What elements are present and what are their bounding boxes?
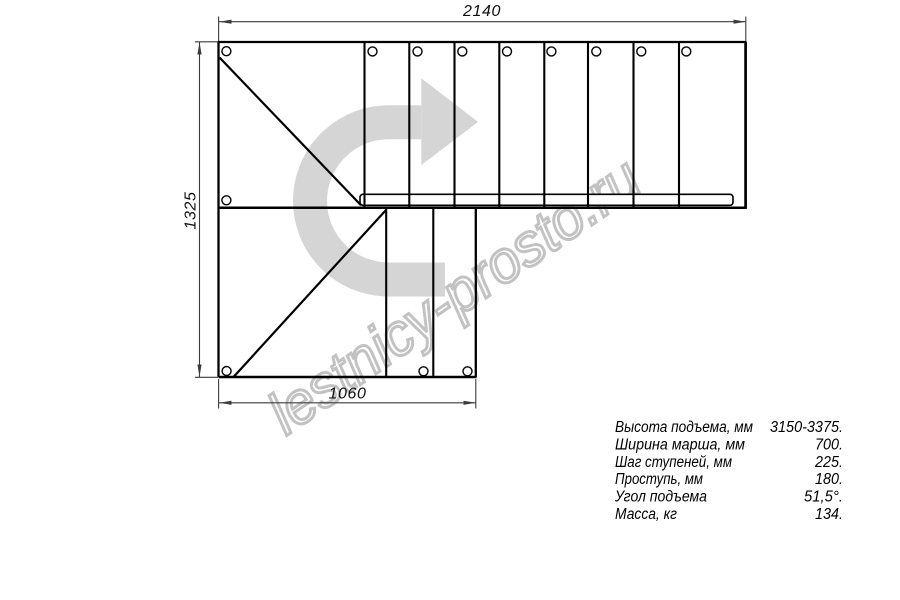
svg-text:180.: 180. [815, 471, 843, 488]
svg-text:700.: 700. [815, 436, 843, 453]
svg-text:Проступь, мм: Проступь, мм [615, 471, 703, 488]
svg-text:Масса, кг: Масса, кг [615, 506, 677, 523]
svg-text:3150-3375.: 3150-3375. [770, 419, 843, 436]
svg-text:2140: 2140 [462, 3, 501, 20]
svg-text:Угол подъема: Угол подъема [614, 489, 707, 506]
svg-text:1325: 1325 [183, 192, 200, 230]
svg-text:1060: 1060 [329, 386, 367, 403]
svg-text:Высота подъема, мм: Высота подъема, мм [615, 419, 753, 436]
svg-text:134.: 134. [815, 506, 843, 523]
svg-text:Ширина марша, мм: Ширина марша, мм [615, 436, 745, 453]
svg-text:Шаг ступеней, мм: Шаг ступеней, мм [615, 454, 732, 471]
svg-text:51,5°.: 51,5°. [804, 489, 843, 506]
svg-text:225.: 225. [814, 454, 843, 471]
